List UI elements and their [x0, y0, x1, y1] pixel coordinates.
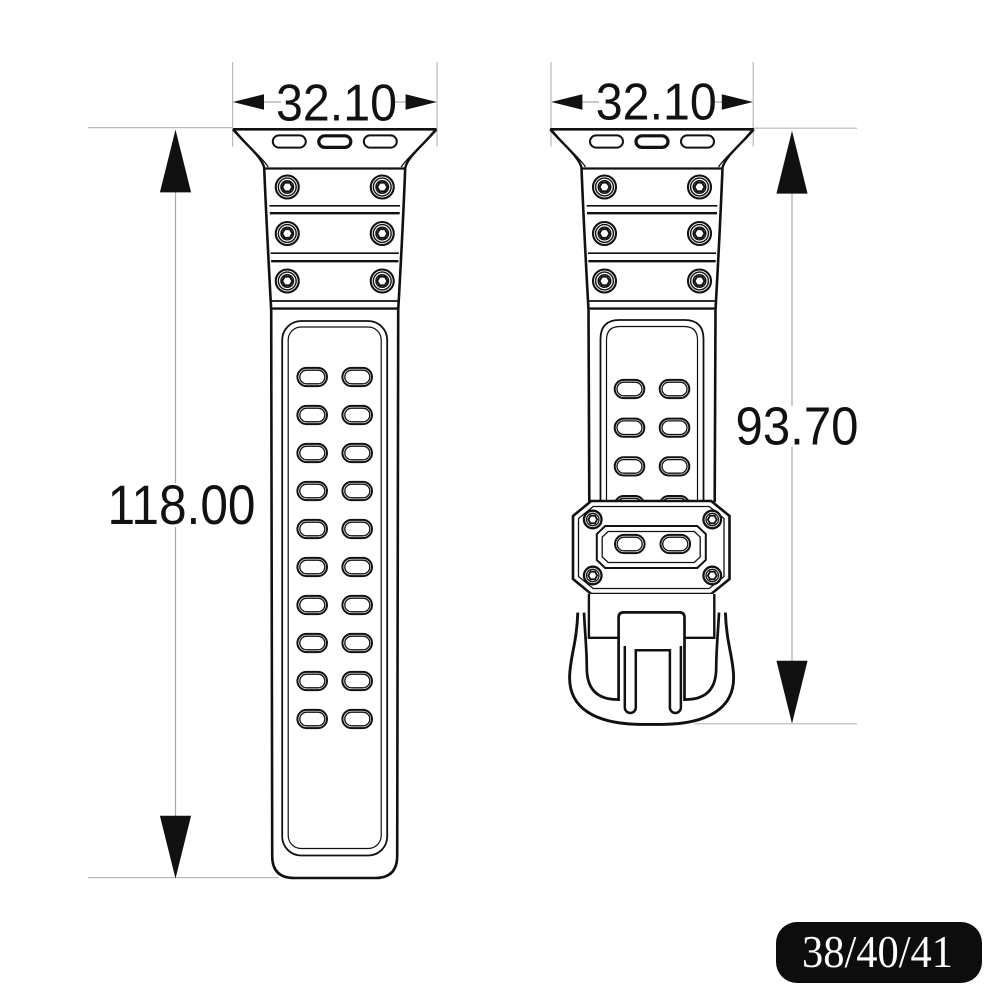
svg-text:118.00: 118.00	[108, 473, 256, 536]
svg-text:32.10: 32.10	[276, 75, 397, 133]
svg-text:38/40/41: 38/40/41	[802, 927, 953, 977]
svg-text:32.10: 32.10	[596, 74, 717, 132]
svg-text:93.70: 93.70	[736, 397, 859, 457]
